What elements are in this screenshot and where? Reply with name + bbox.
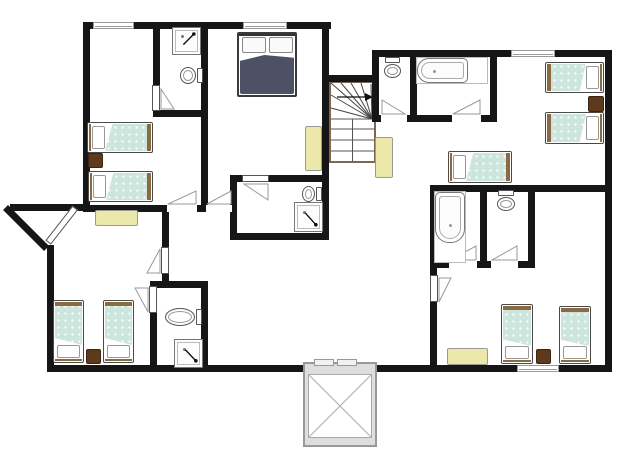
bed-headboard <box>600 114 602 142</box>
single-bed <box>103 300 134 363</box>
window-pane <box>95 26 132 27</box>
bed-footboard <box>561 308 589 312</box>
bathtub-icon-body <box>435 192 465 243</box>
bed-pillow <box>269 37 293 53</box>
toilet-tank <box>197 68 203 83</box>
bathtub-drain <box>433 70 436 73</box>
toilet-seat <box>305 189 312 199</box>
bed-duvet <box>106 173 147 200</box>
bed-pillow <box>453 155 466 179</box>
bed-headboard <box>89 124 91 151</box>
table <box>305 126 322 171</box>
bed-footboard <box>147 124 151 151</box>
single-bed-body <box>53 300 84 363</box>
nightstand <box>536 349 551 364</box>
bed-headboard <box>90 173 92 200</box>
bed-pillow <box>92 126 105 149</box>
wall-diagonal <box>3 205 49 251</box>
toilet-icon-body <box>497 190 515 212</box>
door-leaf <box>149 286 157 313</box>
bed-pillow <box>563 346 587 359</box>
wall <box>322 75 379 82</box>
bed-headboard <box>503 360 531 362</box>
wall <box>230 233 329 240</box>
bed-footboard <box>547 114 551 142</box>
window <box>93 22 134 29</box>
toilet-icon <box>301 186 322 202</box>
door-swing <box>206 190 232 205</box>
window-pane <box>245 26 285 27</box>
window-pane <box>513 54 553 55</box>
door-swing <box>160 88 175 110</box>
door-swing <box>491 245 518 261</box>
elevator-door <box>314 359 334 366</box>
bathtub-rim <box>421 62 464 79</box>
toilet-tank <box>498 190 514 196</box>
bed-duvet <box>55 306 82 345</box>
shower-arrow <box>176 31 197 51</box>
wall <box>150 281 208 288</box>
bed-headboard <box>561 360 589 362</box>
bed-pillow <box>586 116 599 140</box>
staircase <box>329 81 376 163</box>
bed-duvet <box>561 312 589 346</box>
toilet-seat <box>168 311 192 323</box>
bathtub-rim <box>439 196 461 239</box>
single-bed <box>559 306 591 364</box>
shower-arrow <box>298 206 319 228</box>
bed-footboard <box>547 64 551 91</box>
window <box>511 50 555 57</box>
toilet-icon <box>384 57 401 79</box>
single-bed-body <box>88 171 153 202</box>
door-leaf <box>45 206 78 245</box>
bed-pillow <box>107 345 130 358</box>
toilet-icon <box>164 308 202 326</box>
bed-headboard <box>55 359 82 361</box>
bed-pillow <box>57 345 80 358</box>
single-bed <box>501 304 533 364</box>
bathtub-icon <box>417 58 468 83</box>
single-bed-body <box>103 300 134 363</box>
nightstand <box>588 96 604 112</box>
wall <box>153 110 207 117</box>
toilet-icon-body <box>301 186 322 202</box>
toilet-seat <box>387 67 398 75</box>
door-leaf <box>430 275 438 302</box>
nightstand <box>88 153 103 168</box>
double-bed <box>237 32 297 97</box>
toilet-icon <box>497 190 515 212</box>
bed-pillow <box>586 66 599 89</box>
table <box>447 348 488 365</box>
window-pane <box>519 369 557 370</box>
door-swing <box>134 287 149 313</box>
nightstand <box>86 349 101 364</box>
toilet-tank <box>316 187 322 201</box>
toilet-seat <box>500 200 512 208</box>
bed-duvet <box>551 114 586 142</box>
single-bed <box>448 151 512 183</box>
toilet-icon-body <box>164 308 202 326</box>
bed-footboard <box>503 306 531 310</box>
bed-headboard <box>105 359 132 361</box>
bed-footboard <box>147 173 151 200</box>
wall <box>605 50 612 372</box>
shower-arrow <box>178 343 199 364</box>
bed-pillow <box>505 346 529 359</box>
bed-duvet <box>466 153 506 181</box>
door-opening <box>452 115 481 122</box>
door-opening <box>381 115 407 122</box>
bed-duvet <box>551 64 586 91</box>
single-bed <box>87 122 153 153</box>
table <box>95 210 138 226</box>
toilet-tank <box>196 309 202 325</box>
single-bed-body <box>448 151 512 183</box>
window <box>517 365 559 372</box>
bed-headboard <box>450 153 452 181</box>
door-leaf <box>242 175 269 182</box>
door-swing <box>381 99 406 115</box>
single-bed-body <box>545 112 604 144</box>
bed-duvet <box>105 306 132 345</box>
toilet-icon-body <box>384 57 401 79</box>
toilet-tank <box>385 57 400 63</box>
toilet-icon <box>179 67 203 84</box>
toilet-icon-body <box>179 67 203 84</box>
bed-footboard <box>105 302 132 306</box>
wall <box>490 57 497 122</box>
door-swing <box>243 183 269 201</box>
single-bed <box>545 62 604 93</box>
bed-headboard <box>600 64 602 91</box>
bathtub-icon <box>435 192 465 243</box>
bed-duvet <box>503 310 531 346</box>
single-bed <box>88 171 153 202</box>
door-leaf <box>161 247 169 274</box>
bed-pillow <box>242 37 266 53</box>
wall <box>372 50 612 57</box>
elevator-x <box>308 374 372 438</box>
bed-pillow <box>93 175 106 198</box>
wall <box>322 22 329 240</box>
single-bed-body <box>559 306 591 364</box>
bed-duvet <box>240 55 294 94</box>
bed-headboard <box>239 34 295 36</box>
door-swing <box>452 99 481 115</box>
wall <box>480 185 487 268</box>
door-opening <box>206 205 232 212</box>
bed-footboard <box>55 302 82 306</box>
door-opening <box>167 205 197 212</box>
wall <box>201 22 208 212</box>
single-bed-body <box>545 62 604 93</box>
door-opening <box>491 261 518 268</box>
door-swing <box>167 190 197 205</box>
elevator-door <box>337 359 357 366</box>
wall <box>153 22 160 88</box>
table <box>375 137 393 178</box>
single-bed-body <box>501 304 533 364</box>
door-swing <box>438 277 452 303</box>
single-bed <box>545 112 604 144</box>
wall <box>528 185 535 268</box>
single-bed-body <box>87 122 153 153</box>
toilet-seat <box>183 70 193 81</box>
single-bed <box>53 300 84 363</box>
window <box>243 22 287 29</box>
bed-footboard <box>506 153 510 181</box>
door-leaf <box>152 85 160 111</box>
bathtub-icon-body <box>417 58 468 83</box>
floor-plan <box>0 0 622 467</box>
door-swing <box>146 248 161 274</box>
bed-duvet <box>105 124 147 151</box>
